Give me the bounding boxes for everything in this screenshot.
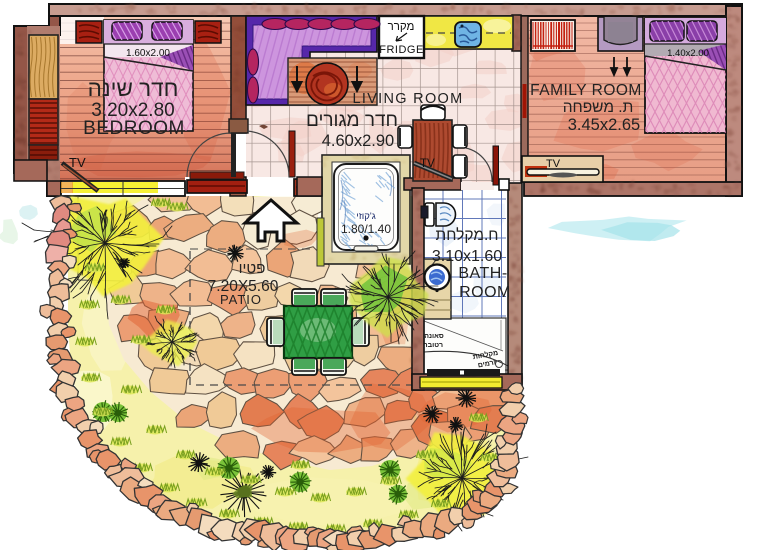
svg-text:4.60x2.90: 4.60x2.90	[322, 132, 394, 150]
svg-text:BEDROOM: BEDROOM	[83, 118, 185, 139]
svg-text:LIVING ROOM: LIVING ROOM	[353, 91, 464, 107]
svg-text:ג'קוזי: ג'קוזי	[356, 211, 375, 222]
svg-text:FAMILY ROOM: FAMILY ROOM	[530, 82, 642, 99]
svg-text:3.10x1.60: 3.10x1.60	[432, 248, 502, 265]
svg-text:רטובה: רטובה	[423, 342, 443, 349]
svg-text:FRIDGE: FRIDGE	[379, 44, 424, 56]
svg-text:1.80/1.40: 1.80/1.40	[341, 222, 391, 236]
svg-text:חדר שינה: חדר שינה	[88, 76, 179, 101]
svg-text:1.40x2.00: 1.40x2.00	[667, 48, 709, 59]
svg-text:TV: TV	[420, 158, 435, 170]
svg-text:3.45x2.65: 3.45x2.65	[568, 116, 640, 134]
svg-text:סאונה: סאונה	[424, 333, 444, 340]
svg-text:BATH-: BATH-	[458, 265, 507, 282]
svg-text:PATIO: PATIO	[220, 292, 262, 307]
svg-text:ROOM: ROOM	[459, 284, 511, 301]
svg-text:מקרר: מקרר	[388, 21, 415, 33]
svg-text:חדר מגורים: חדר מגורים	[306, 110, 398, 131]
svg-text:ת. משפחה: ת. משפחה	[563, 99, 634, 116]
svg-text:TV: TV	[69, 155, 86, 170]
svg-text:TV: TV	[546, 158, 561, 170]
svg-text:פטיו: פטיו	[239, 260, 266, 277]
svg-text:1.60x2.00: 1.60x2.00	[126, 48, 170, 59]
svg-text:ח.מקלחת: ח.מקלחת	[436, 227, 499, 244]
